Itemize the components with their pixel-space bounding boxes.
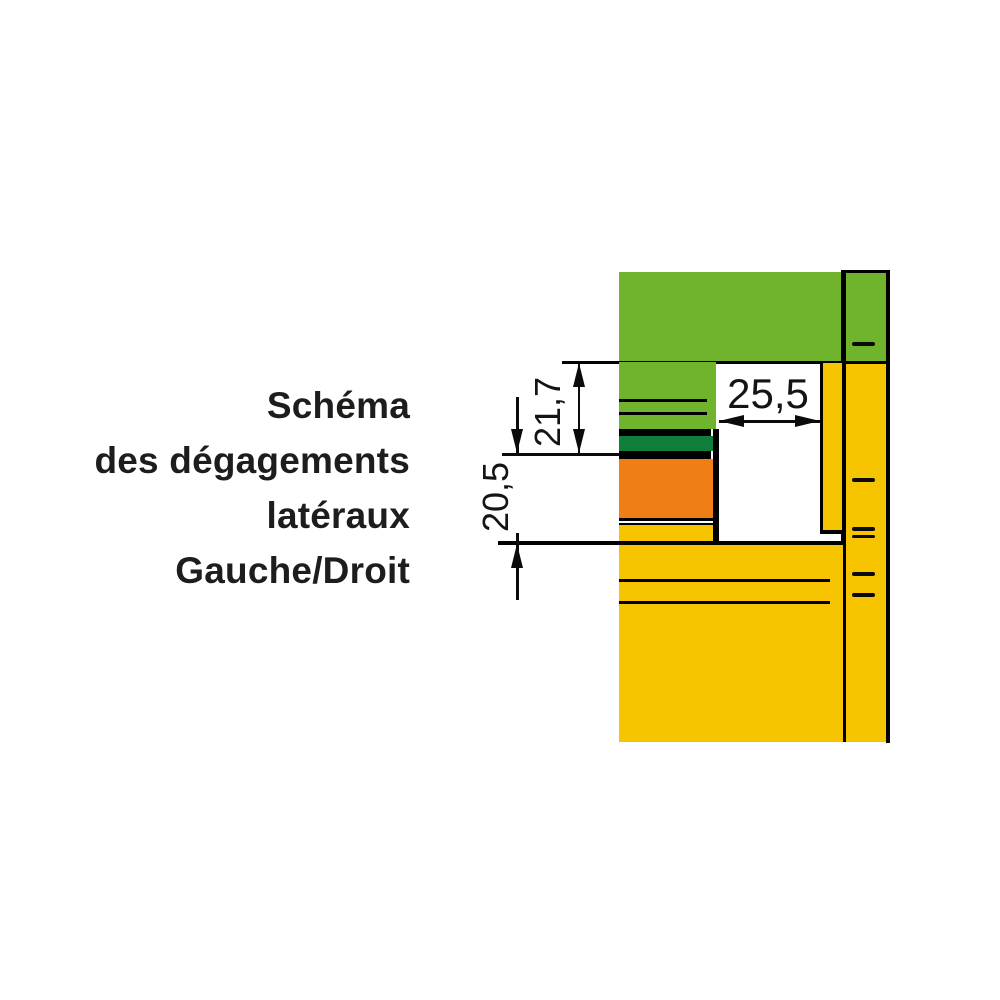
- tick-mark-single-icon: [852, 572, 875, 576]
- bottom-yellow-sill: [619, 545, 843, 742]
- arrow-up-icon: [511, 544, 523, 568]
- right-profile-green: [845, 272, 886, 361]
- profile-right-border: [886, 270, 890, 743]
- tick-mark-double-icon: [852, 527, 875, 531]
- dim-21-7-value: 21,7: [527, 377, 568, 447]
- threshold-line-1: [619, 518, 715, 521]
- mid-extension-line: [502, 453, 620, 456]
- arrow-down-icon: [511, 429, 523, 453]
- right-profile-yellow: [845, 361, 886, 742]
- dim-25-5-value: 25,5: [727, 370, 809, 417]
- arrow-down-icon: [573, 429, 585, 453]
- profile-top-border: [841, 270, 890, 273]
- arrow-up-icon: [573, 363, 585, 387]
- seal-black-band-2: [619, 451, 711, 459]
- pocket-yellow-strip: [823, 363, 842, 530]
- dim-21-7-label: 21,7: [530, 377, 566, 447]
- tick-mark-single-icon: [852, 342, 875, 346]
- dim-20-5-value: 20,5: [475, 462, 516, 532]
- leaf-groove-line-2: [619, 412, 707, 415]
- leaf-right-border: [713, 429, 719, 543]
- tick-mark-single-icon: [852, 593, 875, 597]
- sill-line-1: [619, 579, 830, 582]
- top-green-panel: [619, 272, 843, 362]
- leaf-groove-line-1: [619, 399, 707, 402]
- sill-line-2: [619, 601, 830, 604]
- dim-20-5-label: 20,5: [478, 462, 514, 532]
- tick-mark-double-icon: [852, 535, 875, 539]
- seal-dark-green: [619, 436, 715, 451]
- threshold-orange-block: [619, 459, 715, 518]
- seal-black-band-1: [619, 429, 711, 436]
- pocket-bottom-border: [820, 530, 842, 534]
- dim-25-5-label: 25,5: [717, 373, 819, 415]
- tick-mark-single-icon: [852, 478, 875, 482]
- clearance-diagram: 21,7 20,5 25,5: [0, 0, 1000, 1000]
- leaf-light-green: [619, 362, 716, 429]
